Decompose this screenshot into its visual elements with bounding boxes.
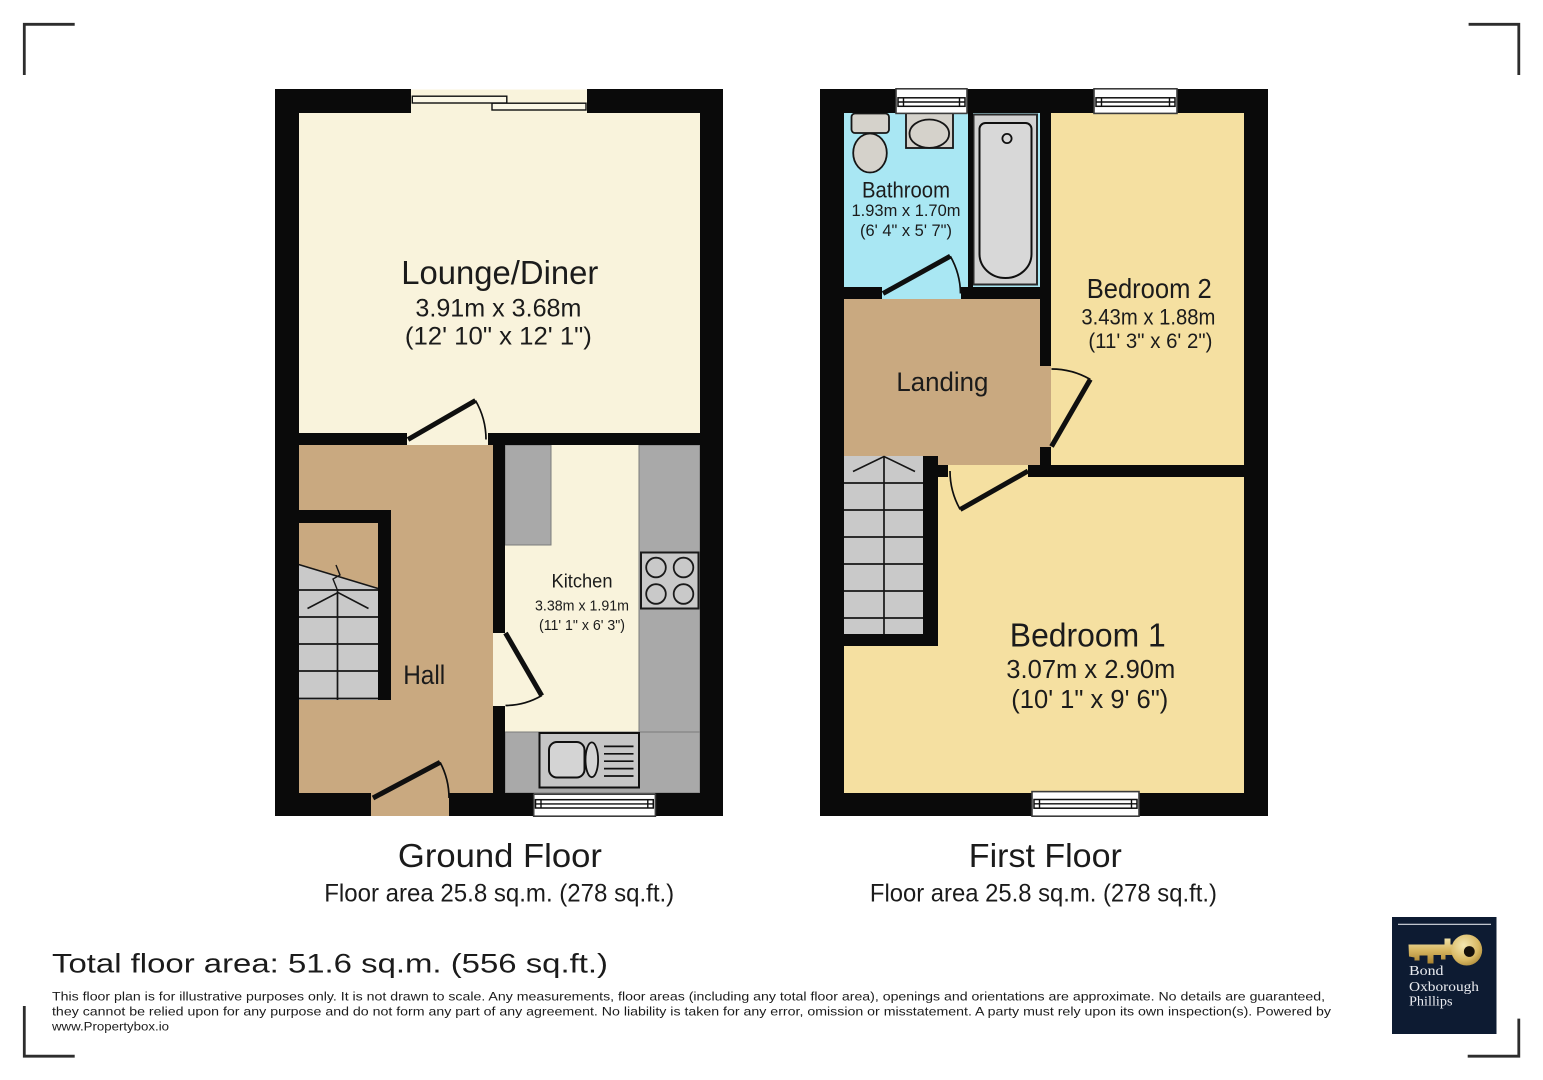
svg-text:1.93m x 1.70m: 1.93m x 1.70m [852,201,961,220]
svg-text:(10' 1" x 9' 6"): (10' 1" x 9' 6") [1011,686,1168,714]
svg-text:Bathroom: Bathroom [862,178,950,203]
svg-text:Landing: Landing [896,367,988,397]
svg-text:3.91m x 3.68m: 3.91m x 3.68m [415,295,581,323]
svg-text:(12' 10" x 12' 1"): (12' 10" x 12' 1") [405,323,592,351]
svg-text:Total floor area: 51.6 sq.m. (: Total floor area: 51.6 sq.m. (556 sq.ft.… [52,949,608,979]
svg-text:(11' 3" x 6' 2"): (11' 3" x 6' 2") [1088,329,1212,353]
svg-text:Bedroom 2: Bedroom 2 [1087,273,1212,304]
svg-text:Floor area 25.8 sq.m. (278 sq.: Floor area 25.8 sq.m. (278 sq.ft.) [324,879,674,907]
svg-text:Hall: Hall [403,660,445,690]
svg-text:Kitchen: Kitchen [552,571,613,593]
svg-text:Bedroom 1: Bedroom 1 [1010,617,1166,654]
svg-text:they cannot be relied upon for: they cannot be relied upon for any purpo… [52,1005,1332,1019]
svg-text:Phillips: Phillips [1409,994,1453,1009]
svg-text:Bond: Bond [1409,963,1444,978]
svg-text:Ground Floor: Ground Floor [398,838,602,875]
svg-text:www.Propertybox.io: www.Propertybox.io [51,1020,169,1034]
svg-text:This floor plan is for illustr: This floor plan is for illustrative purp… [52,990,1325,1004]
svg-text:3.38m x 1.91m: 3.38m x 1.91m [535,598,629,615]
svg-text:Floor area 25.8 sq.m. (278 sq.: Floor area 25.8 sq.m. (278 sq.ft.) [870,879,1217,907]
svg-text:3.43m x 1.88m: 3.43m x 1.88m [1081,305,1215,330]
svg-text:(6' 4" x 5' 7"): (6' 4" x 5' 7") [860,221,952,240]
svg-text:Lounge/Diner: Lounge/Diner [401,254,598,291]
svg-text:Oxborough: Oxborough [1409,979,1479,994]
svg-text:(11' 1" x 6' 3"): (11' 1" x 6' 3") [539,617,625,634]
svg-text:3.07m x 2.90m: 3.07m x 2.90m [1006,656,1175,684]
svg-text:First Floor: First Floor [969,838,1122,875]
